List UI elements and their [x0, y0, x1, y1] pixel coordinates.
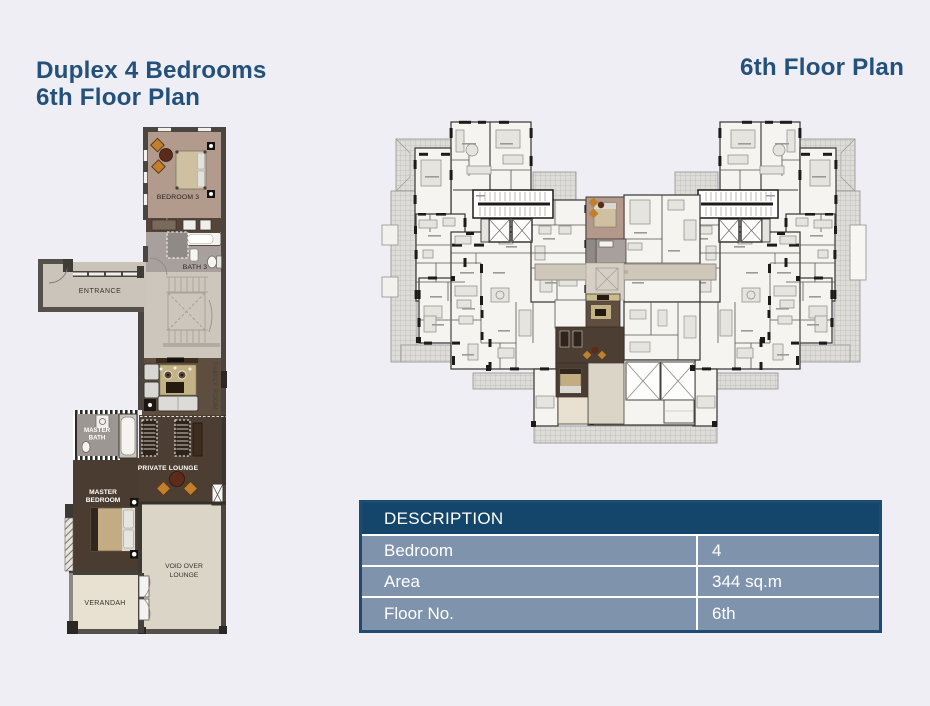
svg-text:FAMILY ROOM: FAMILY ROOM — [211, 362, 218, 410]
svg-text:BEDROOM: BEDROOM — [86, 497, 121, 504]
svg-text:PRIVATE LOUNGE: PRIVATE LOUNGE — [138, 465, 199, 472]
svg-text:BEDROOM 3: BEDROOM 3 — [157, 194, 200, 201]
svg-text:ENTRANCE: ENTRANCE — [79, 288, 122, 295]
svg-text:VERANDAH: VERANDAH — [84, 600, 125, 607]
svg-text:VOID OVER: VOID OVER — [165, 563, 203, 570]
svg-text:LOUNGE: LOUNGE — [170, 572, 199, 579]
svg-text:BATH 3: BATH 3 — [183, 264, 208, 271]
svg-text:BATH: BATH — [89, 435, 106, 442]
svg-text:MASTER: MASTER — [89, 489, 117, 496]
svg-text:MASTER: MASTER — [84, 427, 111, 434]
